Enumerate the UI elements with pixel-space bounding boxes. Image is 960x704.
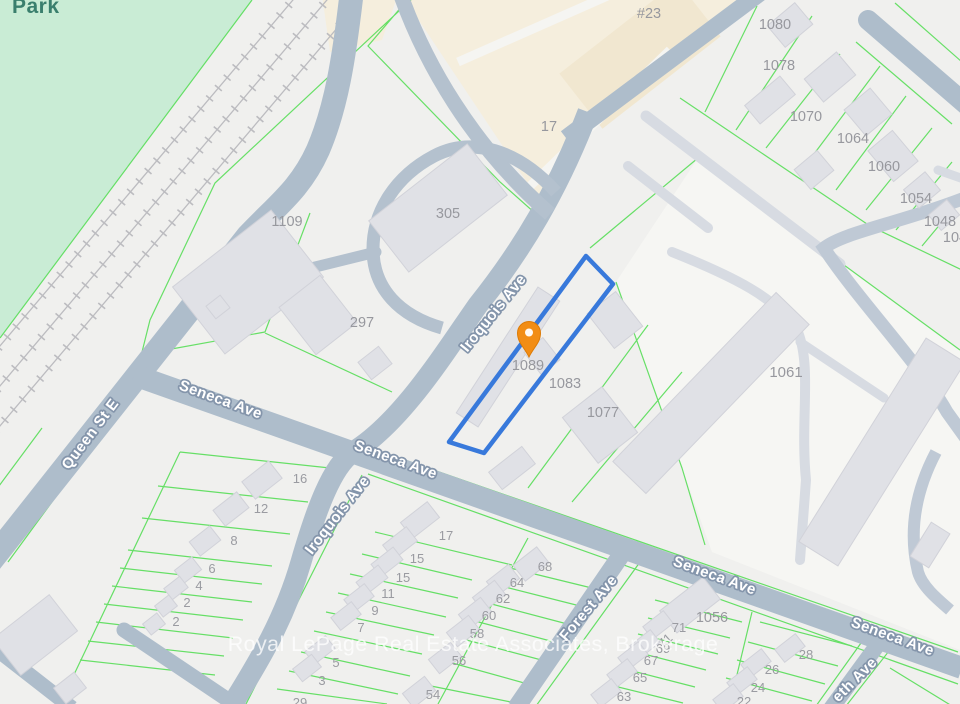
lot-number-label: 1080	[759, 17, 791, 33]
lot-number-label: 9	[371, 603, 378, 618]
lot-number-label: 1054	[900, 191, 932, 207]
lot-number-label: 26	[765, 662, 779, 677]
lot-number-label: 4	[195, 578, 202, 593]
park-label: Park	[12, 0, 60, 18]
lot-number-label: 16	[293, 471, 307, 486]
lot-number-label: 104	[943, 230, 960, 246]
lot-number-label: 305	[436, 206, 460, 222]
lot-number-label: 28	[799, 647, 813, 662]
lot-number-label: 1060	[868, 159, 900, 175]
lot-number-label: 6	[208, 561, 215, 576]
lot-number-label: 54	[426, 687, 440, 702]
lot-number-label: 62	[496, 591, 510, 606]
lot-number-label: 1077	[587, 405, 619, 421]
lot-number-label: 12	[254, 501, 268, 516]
parcel-map: #23 17 305 1109 297 1080 1078 1070 1064 …	[0, 0, 960, 704]
lot-number-label: 1083	[549, 376, 581, 392]
lot-number-label: 8	[230, 533, 237, 548]
lot-number-label: 63	[617, 689, 631, 704]
lot-number-label: 17	[439, 528, 453, 543]
map-canvas[interactable]: #23 17 305 1109 297 1080 1078 1070 1064 …	[0, 0, 960, 704]
lot-number-label: 1064	[837, 131, 869, 147]
lot-number-label: 17	[541, 119, 557, 135]
lot-number-label: 1056	[696, 610, 728, 626]
lot-number-label: 65	[633, 670, 647, 685]
lot-number-label: 2	[172, 614, 179, 629]
lot-number-label: 2	[183, 595, 190, 610]
lot-number-label: 3	[318, 673, 325, 688]
lot-number-label: #23	[637, 6, 661, 22]
lot-number-label: 1070	[790, 109, 822, 125]
lot-number-label: 297	[350, 315, 374, 331]
lot-number-label: 29	[293, 695, 307, 704]
lot-number-label: 68	[538, 559, 552, 574]
lot-number-label: 5	[332, 655, 339, 670]
lot-number-label: 15	[410, 551, 424, 566]
lot-number-label: 1061	[769, 364, 802, 381]
lot-number-label: 1109	[271, 214, 302, 230]
lot-number-label: 1048	[924, 214, 956, 230]
lot-number-label: 60	[482, 608, 496, 623]
lot-number-label: 1078	[763, 58, 795, 74]
lot-number-label: 15	[396, 570, 410, 585]
lot-number-label: 11	[381, 586, 395, 601]
lot-number-label: 64	[510, 575, 524, 590]
watermark-text: Royal LePage Real Estate Associates, Bro…	[228, 632, 718, 656]
subject-lot-number-label: 1089	[512, 358, 544, 374]
lot-number-label: 22	[737, 694, 751, 704]
lot-number-label: 24	[751, 680, 765, 695]
